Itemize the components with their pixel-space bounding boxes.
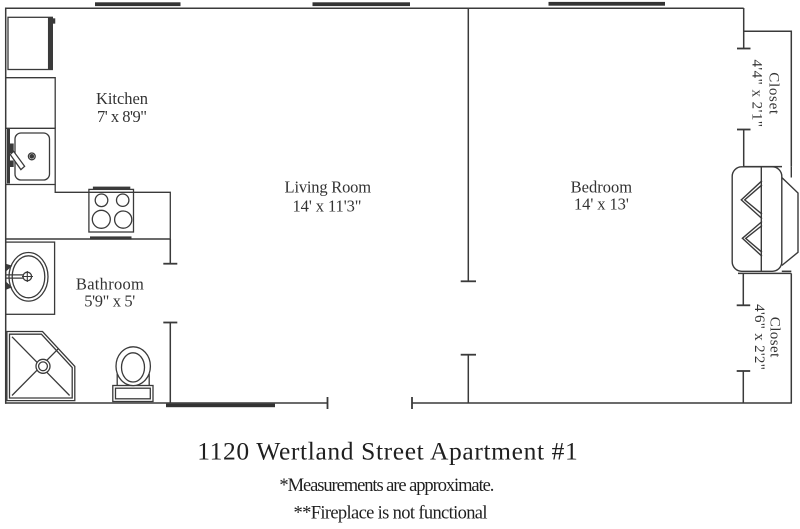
svg-text:7' x 8'9": 7' x 8'9" <box>97 107 147 126</box>
svg-text:Kitchen: Kitchen <box>96 89 148 108</box>
svg-text:Bedroom: Bedroom <box>571 178 633 197</box>
svg-text:14' x 11'3": 14' x 11'3" <box>293 197 362 216</box>
svg-text:14' x 13': 14' x 13' <box>574 195 629 214</box>
svg-text:Closet4'4" x 2'1": Closet4'4" x 2'1" <box>749 59 782 127</box>
svg-text:5'9" x 5': 5'9" x 5' <box>84 291 135 310</box>
svg-text:1120 Wertland Street Apartment: 1120 Wertland Street Apartment #1 <box>197 436 578 465</box>
svg-text:**Fireplace is not functional: **Fireplace is not functional <box>294 504 488 524</box>
svg-text:Closet4'6" x 2'2": Closet4'6" x 2'2" <box>751 304 783 370</box>
svg-text:*Measurements are approximate.: *Measurements are approximate. <box>279 476 494 496</box>
svg-text:Living Room: Living Room <box>285 177 372 196</box>
